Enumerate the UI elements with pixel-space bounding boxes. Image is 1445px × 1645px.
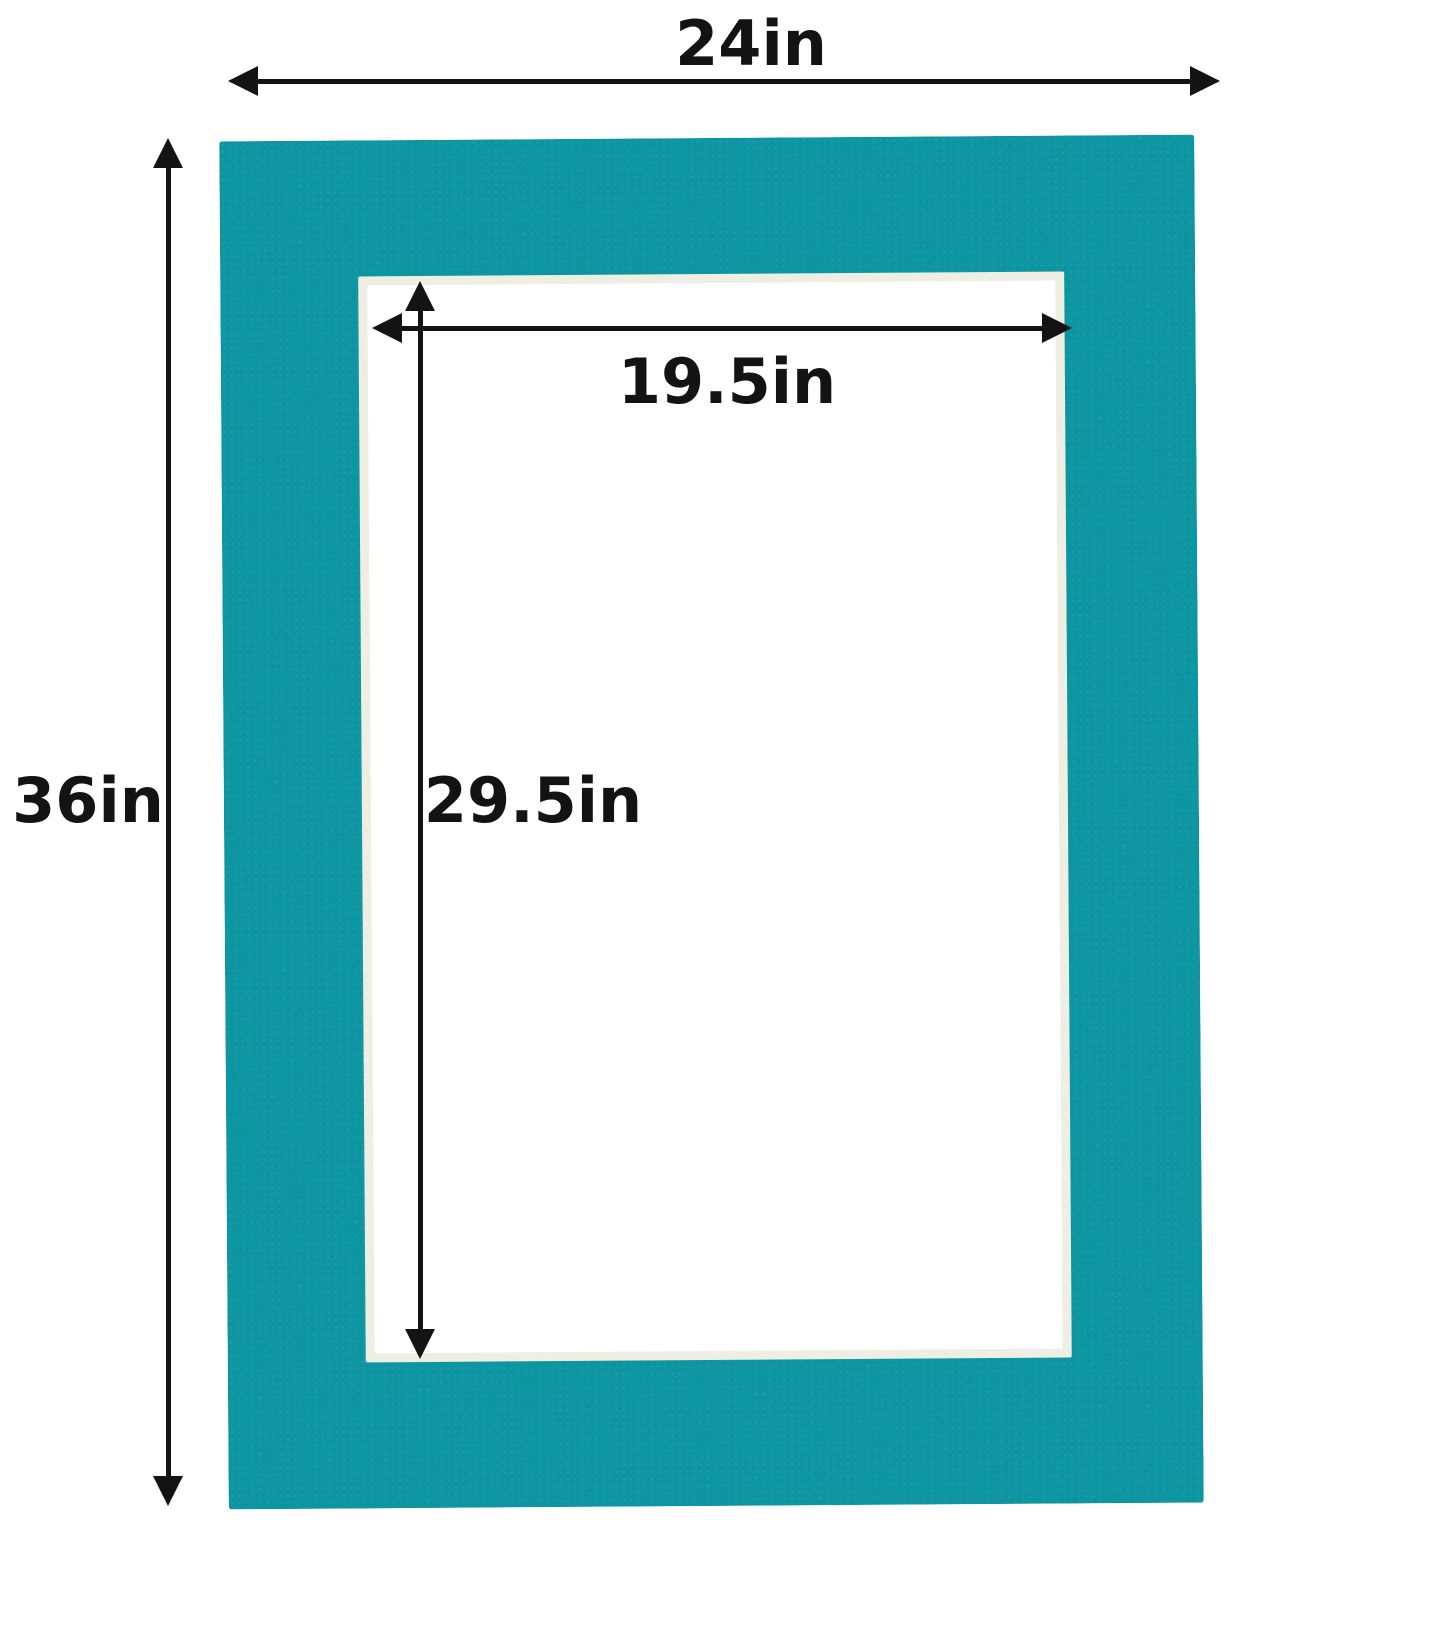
arrow-shaft — [397, 326, 1047, 331]
arrowhead-right-icon — [1190, 66, 1220, 96]
outer-height-arrow — [153, 138, 183, 1506]
opening-width-label: 19.5in — [618, 351, 836, 413]
opening-width-arrow — [372, 313, 1072, 343]
arrowhead-right-icon — [1042, 313, 1072, 343]
arrow-shaft — [253, 79, 1195, 84]
outer-width-arrow — [228, 66, 1220, 96]
opening-height-label: 29.5in — [424, 770, 642, 832]
arrow-shaft — [166, 163, 171, 1481]
opening-height-arrow — [405, 281, 435, 1359]
outer-height-label: 36in — [12, 770, 164, 832]
arrowhead-down-icon — [153, 1476, 183, 1506]
arrowhead-down-icon — [405, 1329, 435, 1359]
arrow-shaft — [418, 306, 423, 1334]
diagram-canvas: 24in 36in 19.5in 29.5in — [0, 0, 1445, 1645]
